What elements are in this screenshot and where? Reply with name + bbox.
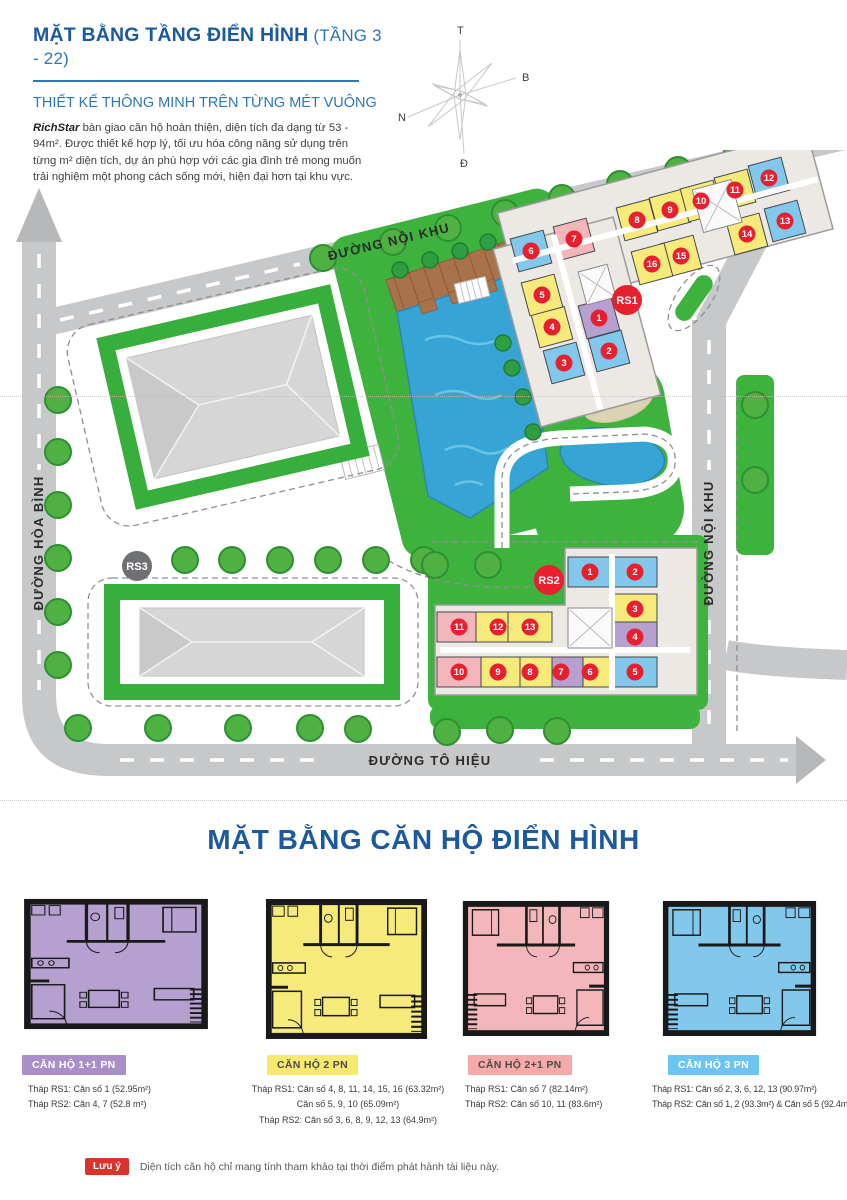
plan-availability-3: Tháp RS1: Căn số 7 (82.14m²)Tháp RS2: Că… <box>465 1082 602 1113</box>
tree-icon <box>267 547 293 573</box>
road-branch-right <box>726 655 847 665</box>
tree-icon <box>45 652 71 678</box>
tree-icon <box>225 715 251 741</box>
tree-icon <box>422 552 448 578</box>
plan-availability-line: Tháp RS2: Căn số 1, 2 (93.3m²) & Căn số … <box>652 1097 847 1112</box>
unit-number: 8 <box>634 215 639 226</box>
road-label-right: ĐƯỜNG NỘI KHU <box>701 481 716 606</box>
tree-icon <box>45 439 71 465</box>
compass-rose-icon: T B N Đ <box>398 20 540 170</box>
compass-label-t: T <box>457 25 464 37</box>
unit-number: 3 <box>561 358 566 369</box>
existing-building-upper <box>106 294 360 500</box>
plan-availability-line: Căn số 5, 9, 10 (65.09m²) <box>244 1097 452 1112</box>
unit-number: 12 <box>493 622 504 633</box>
unit-number: 1 <box>596 313 602 324</box>
plan-availability-line: Tháp RS1: Căn số 7 (82.14m²) <box>465 1082 602 1097</box>
unit-type-badge-1: CĂN HỘ 1+1 PN <box>22 1055 126 1075</box>
tree-icon <box>315 547 341 573</box>
note-badge: Lưu ý <box>85 1158 129 1175</box>
plan-availability-line: Tháp RS1: Căn số 4, 8, 11, 14, 15, 16 (6… <box>244 1082 452 1097</box>
compass-label-n: N <box>398 112 406 124</box>
floor-plan-2-1pn <box>462 900 610 1037</box>
plan-availability-4: Tháp RS1: Căn số 2, 3, 6, 12, 13 (90.97m… <box>652 1082 847 1113</box>
unit-number: 4 <box>549 322 555 333</box>
unit-number: 6 <box>528 246 533 257</box>
palm-tree-icon <box>392 262 408 278</box>
page-title-main: MẶT BẰNG TẦNG ĐIỂN HÌNH <box>33 24 308 46</box>
unit-number: 4 <box>632 632 638 643</box>
tree-icon <box>297 715 323 741</box>
tree-icon <box>475 552 501 578</box>
fold-line <box>0 396 847 397</box>
compass-label-b: B <box>522 72 529 84</box>
road-left-arrow <box>16 188 62 242</box>
unit-number: 16 <box>647 259 658 270</box>
unit-number: 5 <box>632 667 638 678</box>
unit-type-badge-2: CĂN HỘ 2 PN <box>267 1055 358 1075</box>
tree-icon <box>45 387 71 413</box>
unit-number: 7 <box>571 234 576 245</box>
unit-number: 2 <box>632 567 637 578</box>
road-corner <box>22 695 108 776</box>
compass-center <box>458 93 462 97</box>
note-text: Diện tích căn hộ chỉ mang tính tham khảo… <box>140 1161 499 1173</box>
tree-icon <box>45 599 71 625</box>
tree-icon <box>742 467 768 493</box>
title-divider <box>33 80 359 82</box>
unit-number: 10 <box>696 196 707 207</box>
tree-icon <box>487 717 513 743</box>
page-title: MẶT BẰNG TẦNG ĐIỂN HÌNH (TẦNG 3 - 22) <box>33 24 383 70</box>
tree-icon <box>544 718 570 744</box>
road-label-bottom: ĐƯỜNG TÔ HIỆU <box>369 753 492 768</box>
unit-number: 9 <box>667 205 672 216</box>
plan-availability-line: Tháp RS2: Căn số 10, 11 (83.6m²) <box>465 1097 602 1112</box>
unit-number: 5 <box>539 290 545 301</box>
footer-note: Lưu ý Diện tích căn hộ chỉ mang tính tha… <box>85 1158 499 1175</box>
unit-number: 11 <box>454 622 465 633</box>
tree-icon <box>65 715 91 741</box>
unit-number: 15 <box>676 251 687 262</box>
tree-icon <box>219 547 245 573</box>
site-plan: 12345678910111213141516 RS1 123456789101… <box>0 150 847 800</box>
floor-plan-1-1pn <box>23 898 209 1030</box>
unit-number: 13 <box>525 622 536 633</box>
palm-tree-icon <box>515 389 531 405</box>
tree-icon <box>172 547 198 573</box>
plan-availability-1: Tháp RS1: Căn số 1 (52.95m²)Tháp RS2: Că… <box>28 1082 151 1113</box>
plan-availability-line: Tháp RS1: Căn số 2, 3, 6, 12, 13 (90.97m… <box>652 1082 847 1097</box>
unit-number: 2 <box>606 346 611 357</box>
palm-tree-icon <box>495 335 511 351</box>
palm-tree-icon <box>422 252 438 268</box>
rs1-tower-label: RS1 <box>616 295 637 307</box>
unit-number: 12 <box>764 173 775 184</box>
plan-availability-line: Tháp RS1: Căn số 1 (52.95m²) <box>28 1082 151 1097</box>
tree-icon <box>363 547 389 573</box>
road-label-left: ĐƯỜNG HÒA BÌNH <box>31 476 46 611</box>
road-bottom-arrow <box>796 736 826 784</box>
brochure-page: MẶT BẰNG TẦNG ĐIỂN HÌNH (TẦNG 3 - 22) TH… <box>0 0 847 1200</box>
floor-plan-3pn <box>662 900 817 1037</box>
unit-number: 1 <box>587 567 593 578</box>
floor-plan-2pn <box>265 898 428 1040</box>
subtitle: THIẾT KẾ THÔNG MINH TRÊN TỪNG MÉT VUÔNG <box>33 95 383 111</box>
brand-name: RichStar <box>33 122 79 134</box>
unit-type-badge-3: CĂN HỘ 2+1 PN <box>468 1055 572 1075</box>
palm-tree-icon <box>452 243 468 259</box>
unit-number: 9 <box>495 667 500 678</box>
rs2-tower-label: RS2 <box>538 575 559 587</box>
tree-icon <box>345 716 371 742</box>
plan-availability-line: Tháp RS2: Căn 4, 7 (52.8 m²) <box>28 1097 151 1112</box>
tree-icon <box>145 715 171 741</box>
unit-number: 13 <box>780 216 791 227</box>
unit-number: 14 <box>742 229 753 240</box>
unit-number: 6 <box>587 667 592 678</box>
tree-icon <box>45 492 71 518</box>
unit-number: 10 <box>454 667 465 678</box>
unit-number: 7 <box>558 667 563 678</box>
plan-availability-2: Tháp RS1: Căn số 4, 8, 11, 14, 15, 16 (6… <box>244 1082 452 1128</box>
existing-building-lower <box>112 592 392 692</box>
unit-number: 8 <box>527 667 532 678</box>
unit-number: 11 <box>730 185 741 196</box>
tree-icon <box>434 719 460 745</box>
palm-tree-icon <box>480 234 496 250</box>
unit-type-badge-4: CĂN HỘ 3 PN <box>668 1055 759 1075</box>
rs3-tower-label: RS3 <box>126 561 147 573</box>
unit-number: 3 <box>632 604 637 615</box>
plan-availability-line: Tháp RS2: Căn số 3, 6, 8, 9, 12, 13 (64.… <box>244 1113 452 1128</box>
section-title: MẶT BẰNG CĂN HỘ ĐIỂN HÌNH <box>0 824 847 856</box>
palm-tree-icon <box>525 424 541 440</box>
section-divider <box>0 800 847 801</box>
tree-icon <box>45 545 71 571</box>
palm-tree-icon <box>504 360 520 376</box>
